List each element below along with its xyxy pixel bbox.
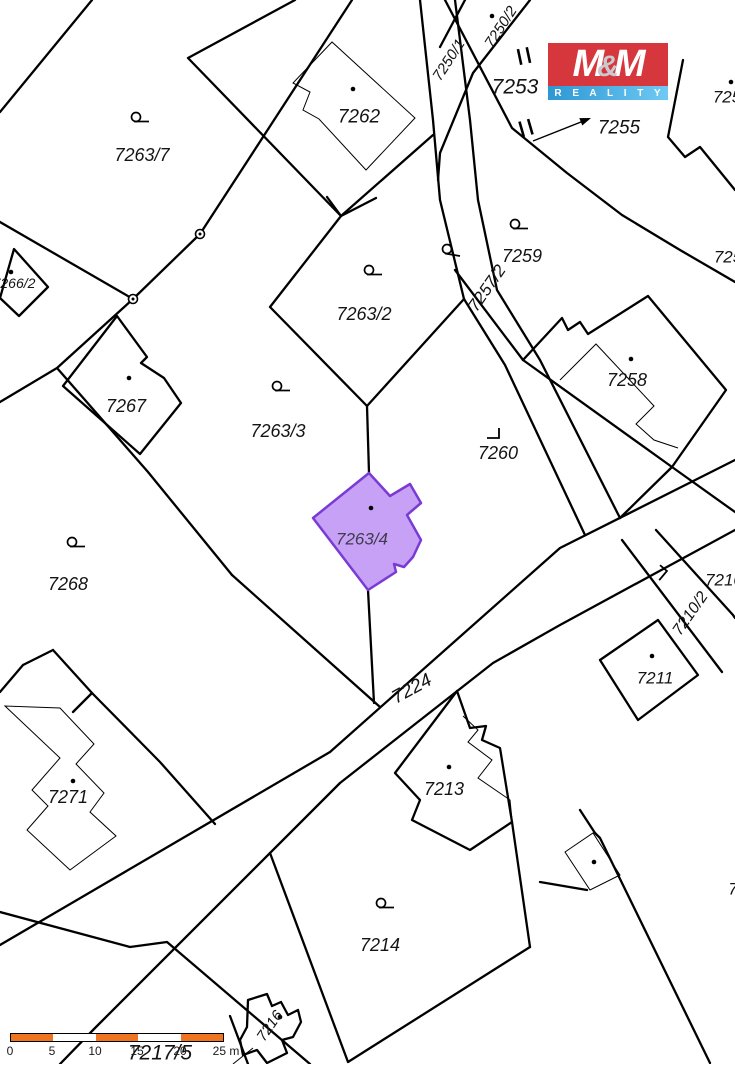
building-point-dot: [127, 376, 132, 381]
parcel-label-7260: 7260: [478, 444, 518, 462]
orchard-icon: [511, 220, 529, 229]
logo-ampersand-icon: &: [597, 50, 619, 84]
scale-bar-segment: [138, 1034, 180, 1041]
building-point-dot: [490, 14, 495, 19]
logo-red-panel: M&M: [548, 43, 668, 86]
building-point-dot: [9, 270, 14, 275]
parcel-label-7210: 7210: [705, 572, 735, 589]
parcel-label-725-right: 725: [714, 249, 735, 266]
scale-bar-segment: [96, 1034, 138, 1041]
building-point-dot: [71, 779, 76, 784]
orchard-icon: [68, 538, 86, 547]
orchard-icon: [377, 899, 395, 908]
scale-tick-20: 20: [173, 1044, 186, 1058]
cadastral-map: 7250/1 7250/2 7253 7255 725 7262 7263/7 …: [0, 0, 735, 1064]
scale-bar: [10, 1033, 224, 1042]
parcel-label-7253: 7253: [492, 77, 539, 98]
parcel-label-7258: 7258: [607, 371, 647, 389]
scale-bar-segment: [181, 1034, 223, 1041]
scale-bar-segment: [53, 1034, 95, 1041]
building-point-dot: [447, 765, 452, 770]
parcel-label-7263-3: 7263/3: [250, 422, 305, 440]
scale-tick-10: 10: [88, 1044, 101, 1058]
mm-reality-logo: M&M R E A L I T Y: [548, 43, 668, 100]
building-point-dot: [729, 80, 734, 85]
building-7213: [463, 716, 512, 820]
corner-mark-7260: [487, 428, 499, 438]
orchard-icon: [273, 382, 291, 391]
orchard-icon: [443, 245, 461, 257]
building-point-dot: [629, 357, 634, 362]
orchard-icon: [132, 113, 150, 122]
scale-tick-25m: 25 m: [213, 1044, 240, 1058]
scale-tick-5: 5: [49, 1044, 56, 1058]
building-point-dot: [351, 87, 356, 92]
parcel-label-7263-7: 7263/7: [114, 146, 169, 164]
scale-tick-0: 0: [7, 1044, 14, 1058]
parcel-label-7213: 7213: [424, 780, 464, 798]
logo-reality-banner: R E A L I T Y: [548, 86, 668, 100]
boundary-marker-dot: [132, 298, 135, 301]
parcel-label-7263-4-highlighted: 7263/4: [336, 531, 388, 548]
parcel-label-partial-7: 7: [728, 881, 735, 898]
parcel-label-7211: 7211: [637, 670, 674, 687]
orchard-icon: [365, 266, 383, 275]
building-point-dot: [369, 506, 374, 511]
arrow-annotation: [533, 118, 591, 141]
scale-bar-segment: [11, 1034, 53, 1041]
parcel-label-7266-2: 7266/2: [0, 276, 35, 290]
scale-tick-15: 15: [130, 1044, 143, 1058]
parcel-label-7271: 7271: [48, 788, 88, 806]
parcel-label-7268: 7268: [48, 575, 88, 593]
parcel-label-7259: 7259: [502, 247, 542, 265]
parcel-label-725-top: 725: [713, 89, 735, 106]
building-point-dot: [592, 860, 597, 865]
gate-mark: [518, 47, 530, 65]
boundary-marker-dot: [199, 233, 202, 236]
parcel-label-7262: 7262: [338, 108, 380, 127]
building-point-dot: [650, 654, 655, 659]
parcel-label-7255: 7255: [598, 119, 640, 138]
parcel-label-7267: 7267: [106, 397, 146, 415]
parcel-label-7263-2: 7263/2: [336, 305, 391, 323]
parcel-label-7214: 7214: [360, 936, 400, 954]
